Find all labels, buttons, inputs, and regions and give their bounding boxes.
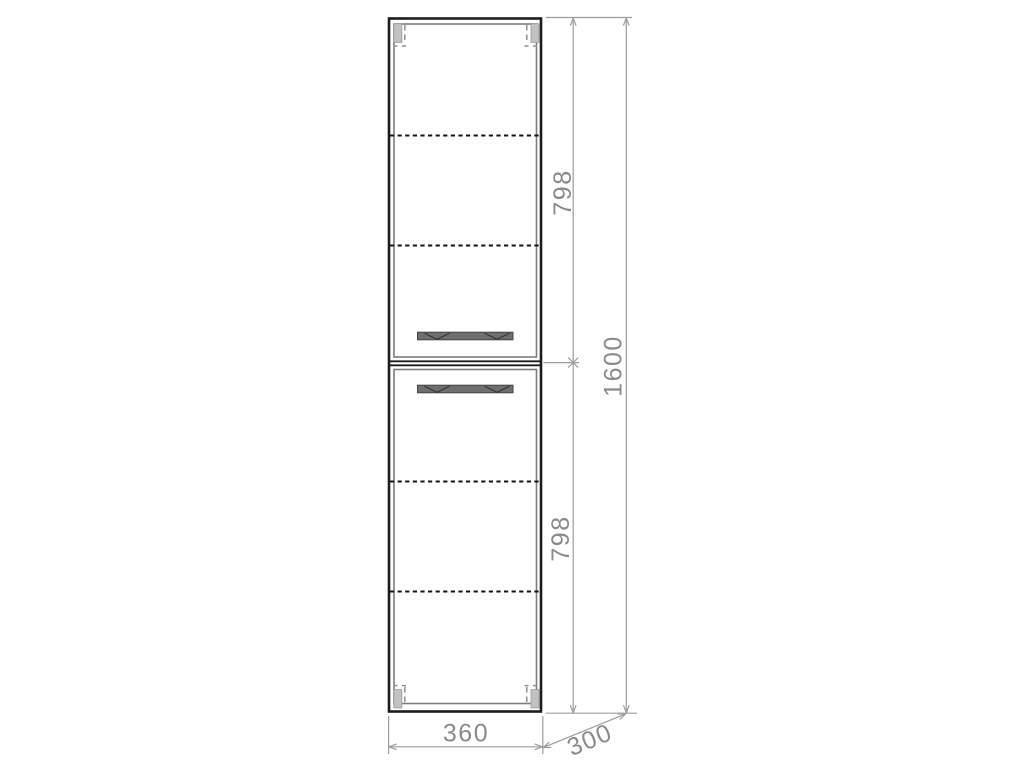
dimension-label-upper-section: 798 <box>549 169 577 215</box>
drawing-canvas: 798 798 1600 360 300 <box>0 0 1024 768</box>
dimension-label-lower-section: 798 <box>547 515 575 561</box>
dimension-label-depth: 300 <box>563 718 616 762</box>
front-elevation-drawing: 798 798 1600 360 300 <box>0 0 1024 768</box>
dimension-label-total-height: 1600 <box>600 335 628 397</box>
dimension-label-width: 360 <box>443 720 489 748</box>
lower-door-handle <box>418 385 514 393</box>
upper-door-handle <box>418 332 514 340</box>
